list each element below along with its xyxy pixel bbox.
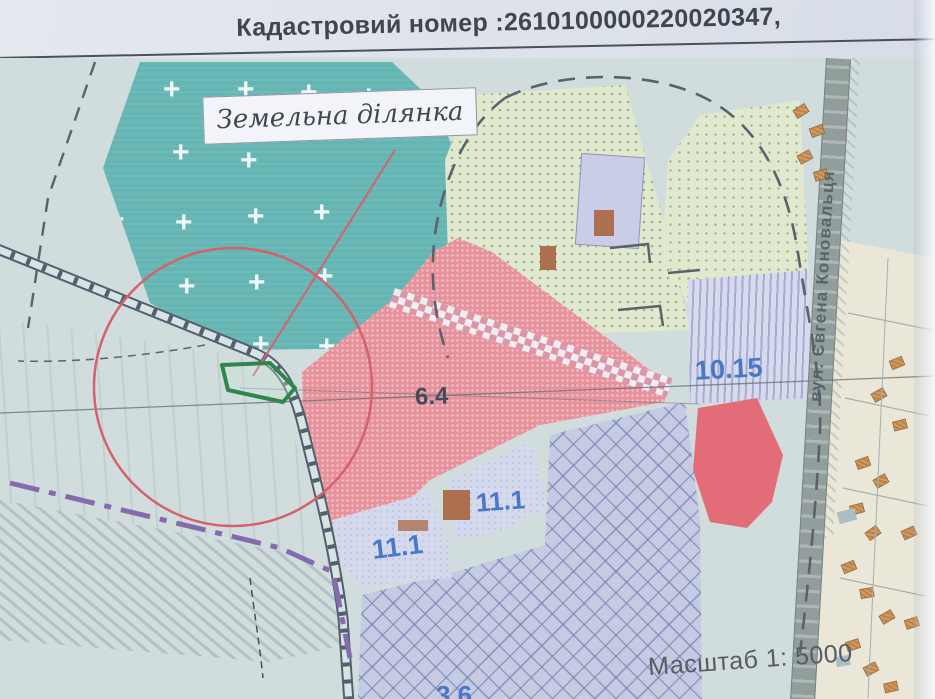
area-value-parcel-right: 11.1 [475, 484, 526, 518]
boundary-segment [618, 306, 663, 326]
boundary-dashed-line [505, 77, 820, 653]
railway-line [0, 248, 349, 699]
path-line [250, 578, 263, 678]
area-value-center: 6.4 [415, 382, 449, 411]
page-title: Кадастровий номер :2610100000220020347, [236, 3, 781, 43]
map-lines-overlay [0, 58, 935, 699]
land-plot-label: Земельна ділянка [202, 87, 478, 145]
page-edge [914, 0, 935, 699]
cadastral-line [0, 376, 935, 413]
leader-line [253, 150, 395, 376]
path-line [18, 345, 205, 361]
boundary-dashed-line [433, 98, 505, 358]
cadastral-map-photo: Кадастровий номер :2610100000220020347, … [0, 0, 935, 699]
map-canvas: + + + + + + + + + + + + + + + + [0, 58, 935, 699]
area-value-parcel-left: 11.1 [370, 529, 424, 566]
parcel-line [868, 258, 888, 698]
area-value-bottom: 3.6 [436, 680, 472, 699]
boundary-segment [610, 244, 650, 263]
map-frame-line [0, 38, 935, 59]
area-value-northeast: 10.15 [694, 352, 763, 386]
cadastral-line [240, 388, 700, 404]
boundary-segment [668, 270, 700, 273]
